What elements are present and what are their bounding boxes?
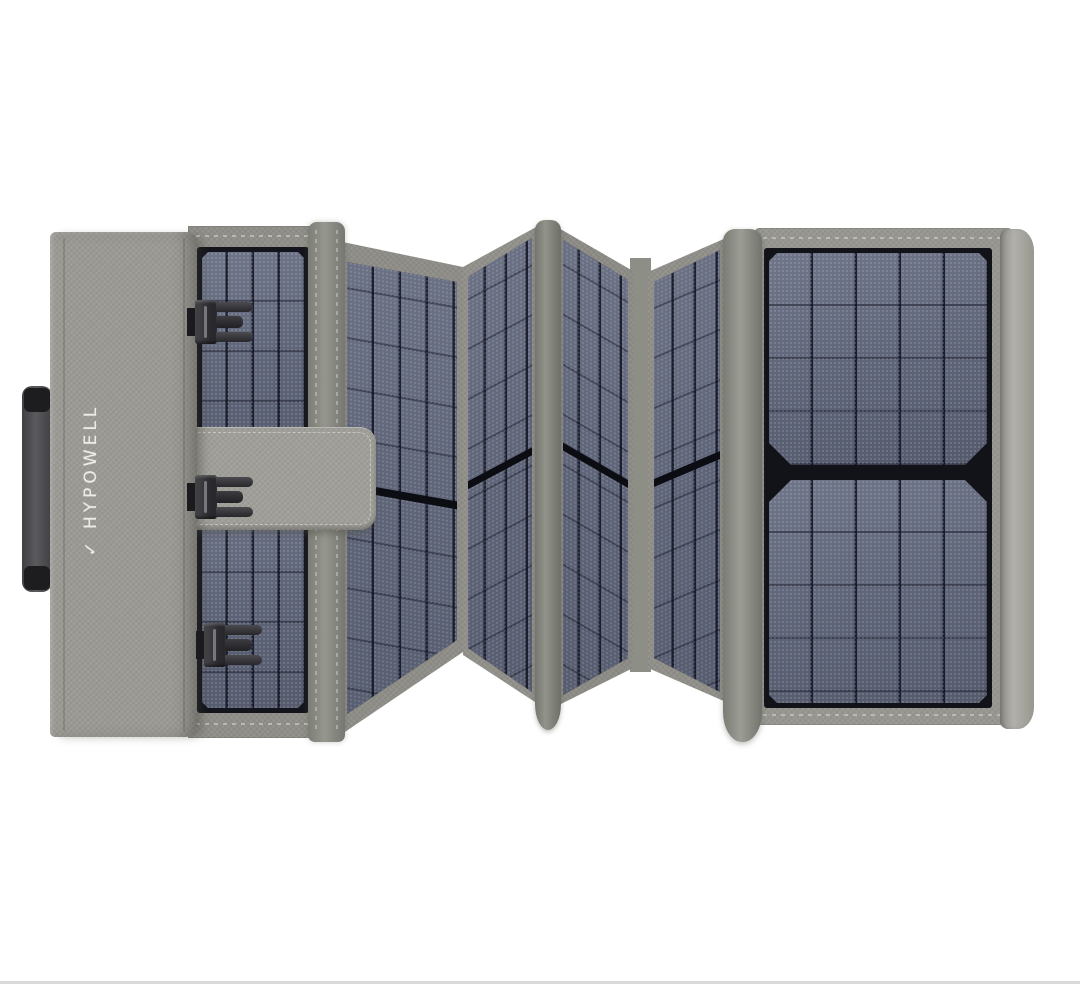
- seam-line: [183, 238, 185, 731]
- solar-section-6: [755, 228, 1012, 725]
- right-edge-binding: [1000, 229, 1034, 729]
- buckle-bottom: [196, 623, 268, 667]
- solar-cell-window: [764, 248, 992, 708]
- stitch-line: [196, 723, 326, 725]
- valley-hinge: [630, 258, 651, 672]
- carry-handle: [22, 386, 52, 592]
- solar-cell-array: [769, 253, 987, 465]
- brand-name: HYPOWELL: [81, 404, 101, 529]
- fold-bar-2: [723, 229, 762, 742]
- product-photo: ✓ HYPOWELL: [0, 0, 1080, 985]
- buckle-middle: [187, 475, 259, 519]
- stitch-line: [763, 237, 1004, 239]
- seam-line: [63, 238, 65, 731]
- cover-flap: ✓ HYPOWELL: [50, 232, 197, 737]
- buckle-prong: [225, 625, 262, 635]
- stitch-line: [196, 235, 326, 237]
- solar-cell-array: [769, 480, 987, 703]
- buckle-prong: [216, 332, 253, 342]
- buckle-tongue: [216, 316, 243, 328]
- solar-cell-window: [463, 223, 538, 712]
- buckle-slot: [204, 481, 207, 513]
- buckle-slot: [213, 629, 216, 661]
- buckle-top: [187, 300, 259, 344]
- handle-anchor-bottom: [24, 566, 50, 590]
- handle-anchor-top: [24, 388, 50, 412]
- buckle-prong: [225, 655, 262, 665]
- buckle-tongue: [216, 491, 243, 503]
- buckle-prong: [216, 507, 253, 517]
- solar-section-3: [463, 223, 538, 712]
- solar-section-5: [648, 235, 726, 702]
- photo-bottom-border: [0, 981, 1080, 984]
- buckle-slot: [204, 306, 207, 338]
- brand-check-icon: ✓: [81, 538, 101, 556]
- buckle-tongue: [225, 639, 252, 651]
- buckle-prong: [216, 302, 253, 312]
- buckle-prong: [216, 477, 253, 487]
- solar-cell-window: [557, 224, 633, 706]
- brand-logo: ✓ HYPOWELL: [80, 385, 102, 575]
- solar-section-4: [557, 224, 633, 706]
- fold-bar-1: [535, 220, 561, 730]
- solar-cell-window: [648, 235, 726, 702]
- stitch-line: [763, 714, 1004, 716]
